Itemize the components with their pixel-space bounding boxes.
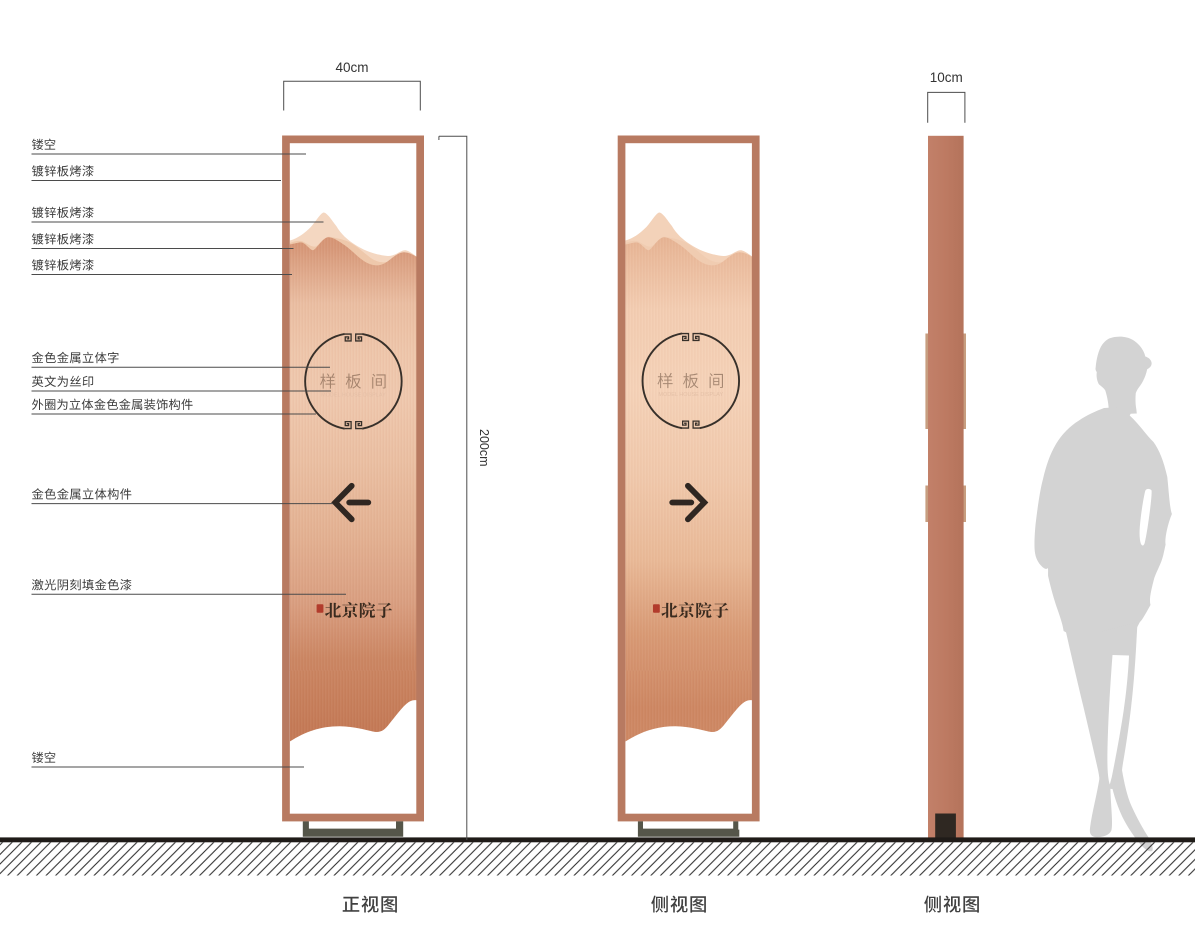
svg-text:200cm: 200cm: [477, 429, 491, 467]
svg-text:10cm: 10cm: [930, 70, 963, 85]
svg-text:40cm: 40cm: [335, 60, 368, 75]
svg-text:MODEL HOUSE DISPLAY: MODEL HOUSE DISPLAY: [321, 393, 386, 399]
svg-text:MODEL HOUSE DISPLAY: MODEL HOUSE DISPLAY: [658, 392, 723, 398]
